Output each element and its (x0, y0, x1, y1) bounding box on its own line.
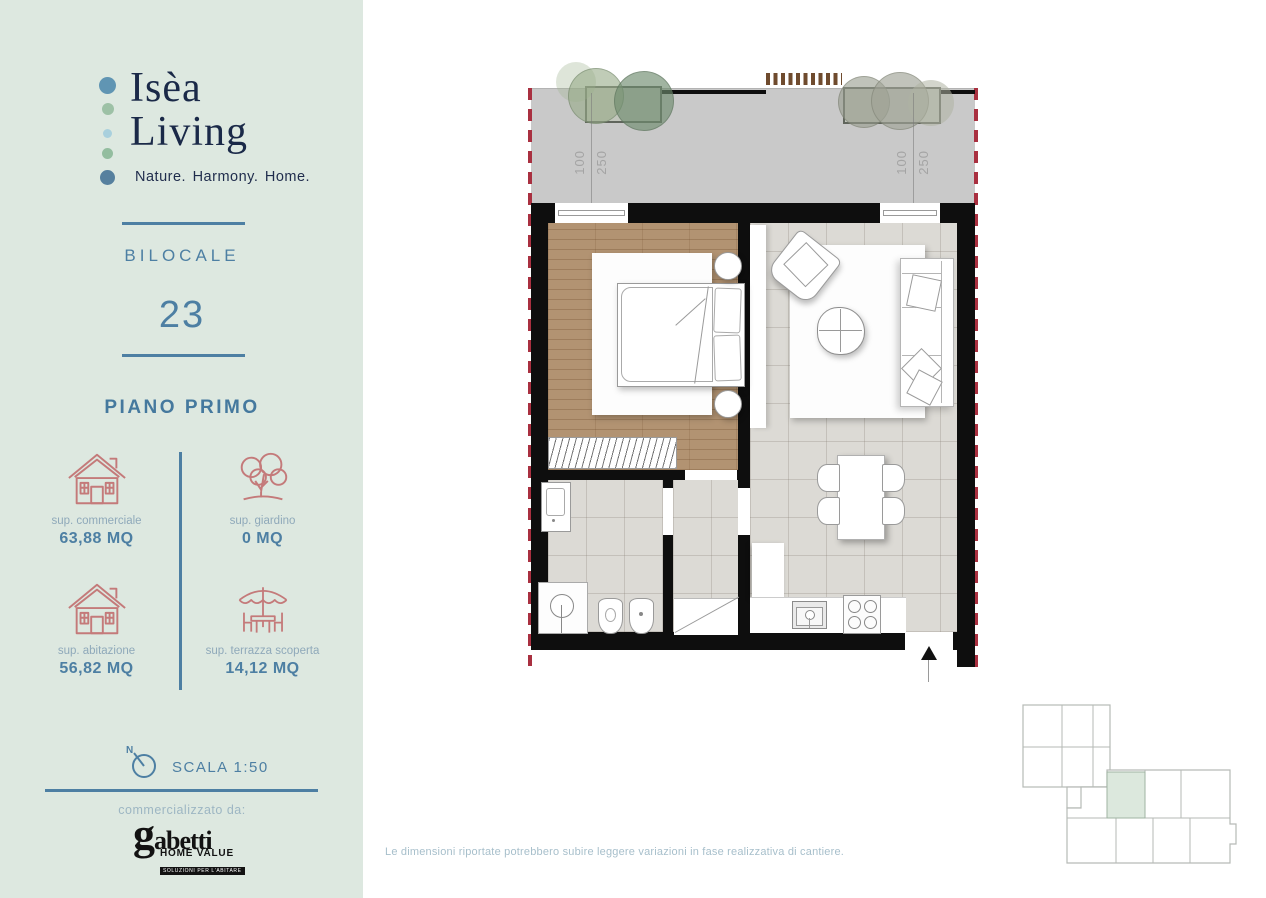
entrance-arrow-stem (928, 660, 929, 682)
window-living (880, 203, 940, 223)
house-icon (66, 580, 128, 638)
divider-rule-bottom (122, 354, 245, 357)
wood-slat-screen (766, 73, 842, 85)
brand-name: Isèa Living (130, 66, 248, 154)
kitchen-sink (792, 601, 827, 629)
tree (908, 80, 954, 126)
floor-plan: 100 250 100 250 (528, 60, 980, 700)
kitchen-tall-unit (752, 543, 784, 597)
kitchen-counter (750, 597, 906, 633)
dining-chair (882, 464, 905, 492)
key-plan-highlighted-unit (1107, 772, 1145, 818)
tree (614, 71, 674, 131)
stat-value: 14,12 MQ (185, 660, 340, 678)
dimension-label: 100 (572, 150, 587, 175)
terrace-top-wall-left (657, 90, 766, 94)
wall-bottom-right (953, 632, 975, 650)
door-hall-living (738, 488, 750, 535)
dimension-label: 250 (916, 150, 931, 175)
stats-divider (179, 452, 182, 690)
washbasin (541, 482, 571, 532)
dining-table (837, 455, 885, 540)
house-icon (66, 450, 128, 508)
stat-terrazza: sup. terrazza scoperta 14,12 MQ (185, 580, 340, 678)
dining-chair (882, 497, 905, 525)
north-compass-icon: N (123, 740, 165, 784)
bidet (629, 598, 654, 634)
wardrobe (548, 437, 677, 469)
armchair-cushion (783, 242, 828, 287)
dimension-label: 250 (594, 150, 609, 175)
stat-label: sup. terrazza scoperta (185, 645, 340, 657)
brand-dot-5 (100, 170, 115, 185)
unit-type-label: BILOCALE (62, 246, 302, 266)
stat-giardino: sup. giardino 0 MQ (190, 450, 335, 548)
gabetti-claim: SOLUZIONI PER L'ABITARE (160, 867, 245, 875)
stat-abitazione: sup. abitazione 56,82 MQ (24, 580, 169, 678)
brand-tagline: Nature. Harmony. Home. (135, 169, 310, 185)
north-label: N (126, 745, 133, 756)
nightstand (714, 252, 742, 280)
stat-label: sup. giardino (190, 515, 335, 527)
wall-right (957, 203, 975, 667)
bed-pillow (713, 288, 742, 334)
brand-name-line1: Isèa (130, 66, 248, 110)
entrance-arrow (921, 646, 937, 660)
brand-dot-1 (99, 77, 116, 94)
scale-label: SCALA 1:50 (172, 759, 269, 776)
toilet (598, 598, 623, 634)
nightstand (714, 390, 742, 418)
gabetti-logo: gabetti HOME VALUE SOLUZIONI PER L'ABITA… (133, 822, 253, 877)
window-bedroom (555, 203, 628, 223)
stat-label: sup. commerciale (24, 515, 169, 527)
bed-pillow (713, 335, 742, 382)
gabetti-home-value: HOME VALUE (160, 848, 253, 859)
coffee-table (817, 307, 865, 355)
unit-number: 23 (62, 294, 302, 337)
brand-dot-3 (103, 129, 112, 138)
stat-value: 63,88 MQ (24, 530, 169, 548)
gabetti-sub: HOME VALUE SOLUZIONI PER L'ABITARE (160, 848, 253, 877)
stat-label: sup. abitazione (24, 645, 169, 657)
brand-dot-4 (102, 148, 113, 159)
building-key-plan (1018, 698, 1240, 873)
brand-dot-2 (102, 103, 114, 115)
dimension-label: 100 (894, 150, 909, 175)
kitchen-hob (843, 595, 881, 634)
entry-closet (674, 598, 738, 635)
dining-chair (817, 497, 840, 525)
tree-icon (232, 450, 294, 508)
sidebar: Isèa Living Nature. Harmony. Home. BILOC… (0, 0, 363, 898)
door-leaf-open (750, 225, 766, 428)
divider-rule-top (122, 222, 245, 225)
stat-commerciale: sup. commerciale 63,88 MQ (24, 450, 169, 548)
footer-rule (45, 789, 318, 792)
bed-blanket (621, 287, 713, 382)
stat-value: 0 MQ (190, 530, 335, 548)
stat-value: 56,82 MQ (24, 660, 169, 678)
bed (617, 283, 745, 387)
dining-chair (817, 464, 840, 492)
door-bathroom (663, 488, 673, 535)
marketed-by-label: commercializzato da: (62, 803, 302, 817)
disclaimer-text: Le dimensioni riportate potrebbero subir… (385, 846, 844, 858)
door-bedroom (685, 470, 737, 480)
floor-label: PIANO PRIMO (62, 397, 302, 419)
brand-name-line2: Living (130, 110, 248, 154)
sink-tap (805, 610, 815, 620)
sofa (900, 258, 954, 407)
terrace-umbrella-icon (232, 580, 294, 638)
shower (538, 582, 588, 634)
